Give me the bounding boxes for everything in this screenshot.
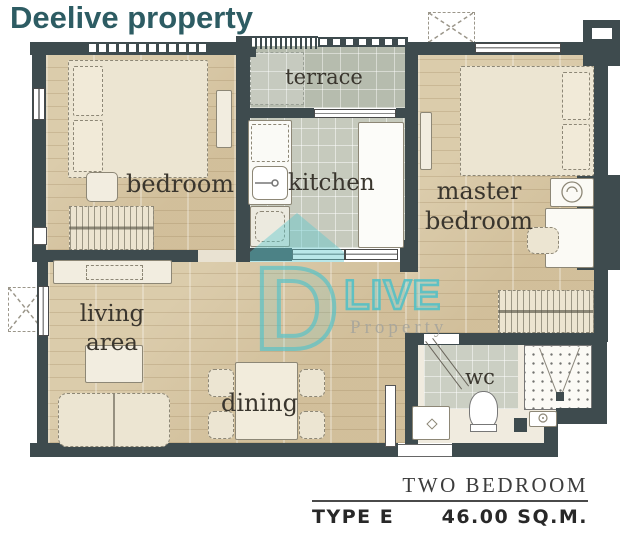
side-table [550, 178, 594, 207]
pillow [73, 66, 103, 116]
terrace-railing [318, 37, 408, 47]
kitchen-counter-pass [292, 249, 345, 260]
legend-area: 46.00 SQ.M. [442, 506, 588, 528]
master-window [475, 43, 561, 53]
kitchen-sink [252, 166, 288, 200]
wall [240, 248, 292, 261]
kitchen-entry [345, 249, 398, 260]
master-console [420, 112, 432, 170]
wall-stub [514, 418, 527, 432]
bedroom-door-opening [198, 250, 238, 262]
entrance-door-leaf [385, 385, 396, 447]
wall [556, 408, 607, 424]
terrace-railing [240, 36, 318, 49]
room-label-wc: wc [460, 364, 500, 390]
bedroom-window [88, 43, 210, 53]
entrance-threshold [398, 444, 452, 457]
room-label-terrace: terrace [284, 64, 364, 90]
tv-console [53, 260, 172, 284]
ac-unit-top [428, 12, 475, 44]
room-label-master-bedroom: master bedroom [418, 176, 540, 236]
chair [299, 369, 325, 397]
wall [452, 443, 558, 457]
bedroom-console [216, 90, 232, 148]
bedroom-side-window [33, 88, 45, 120]
chair [299, 411, 325, 439]
vanity-sink [412, 406, 450, 440]
master-wardrobe [498, 290, 594, 333]
plan-legend: TWO BEDROOM TYPE E 46.00 SQ.M. [312, 473, 588, 528]
wardrobe [69, 206, 154, 250]
legend-divider [312, 500, 588, 502]
legend-type-code: TYPE E [312, 506, 394, 528]
washing-machine [250, 206, 290, 247]
page-title: Deelive property [10, 0, 253, 36]
pillow [73, 120, 103, 172]
wall-niche [33, 227, 47, 245]
room-label-kitchen: kitchen [288, 169, 366, 198]
stove [251, 124, 289, 162]
room-label-living-area: living area [55, 300, 169, 358]
terrace-door-window [314, 109, 396, 118]
room-label-bedroom: bedroom [126, 169, 226, 199]
wall [247, 108, 314, 118]
pillow [562, 72, 590, 120]
wall [592, 333, 607, 415]
nightstand [86, 172, 118, 202]
toilet-base [470, 424, 497, 432]
room-label-dining: dining [221, 388, 291, 418]
wall [405, 42, 418, 252]
living-window [38, 286, 49, 336]
shower-handle [556, 392, 564, 401]
watermark-live-text: LIVE [344, 271, 441, 319]
shower-tray [529, 411, 557, 427]
watermark-property-text: Property [350, 317, 447, 339]
pillow [562, 124, 590, 170]
floor-plan-page: Deelive property [0, 0, 640, 534]
legend-type-name: TWO BEDROOM [312, 473, 588, 498]
sofa [58, 393, 170, 447]
shaft-vent [592, 28, 612, 39]
